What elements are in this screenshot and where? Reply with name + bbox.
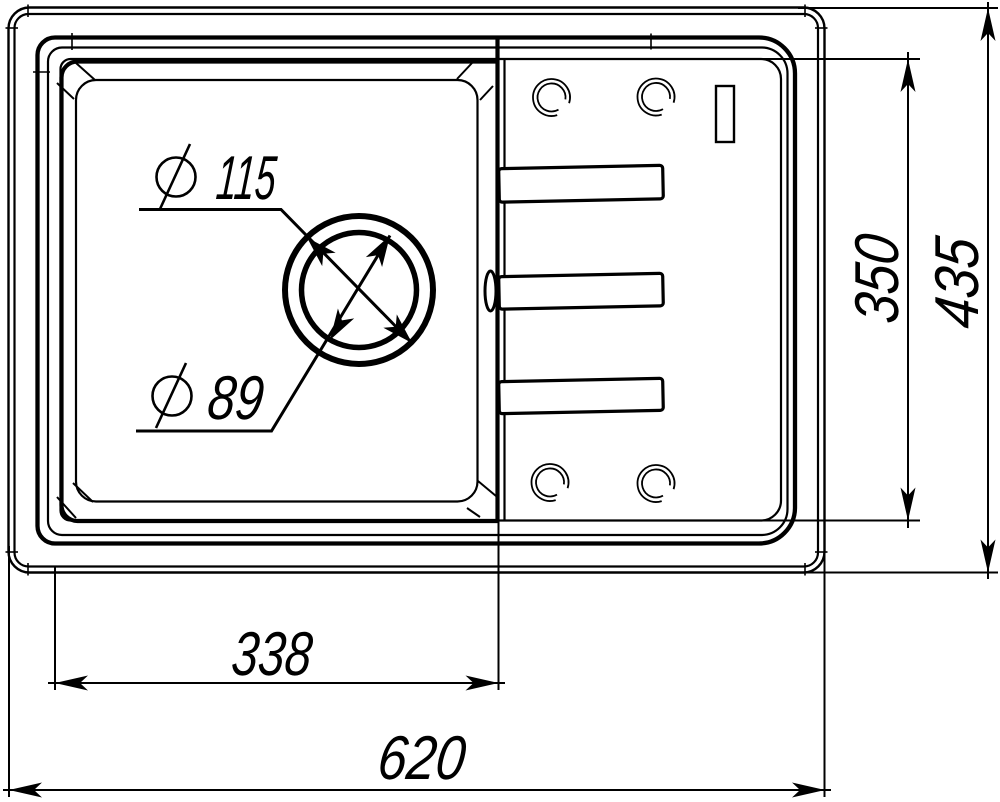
svg-text:435: 435 <box>923 233 992 332</box>
svg-text:350: 350 <box>843 231 912 327</box>
svg-text:89: 89 <box>205 363 268 432</box>
svg-text:338: 338 <box>229 619 316 688</box>
svg-text:620: 620 <box>374 724 469 793</box>
svg-text:115: 115 <box>214 143 279 212</box>
